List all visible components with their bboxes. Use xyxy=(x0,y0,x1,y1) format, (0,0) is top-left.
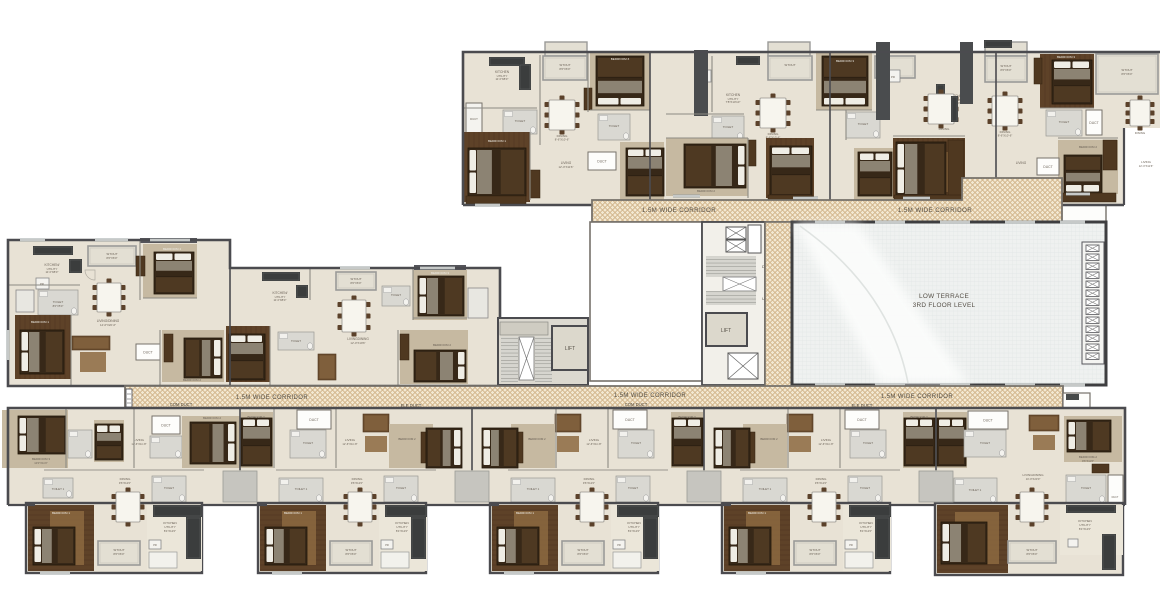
svg-text:PR: PR xyxy=(385,543,389,547)
svg-text:BEDROOM 3: BEDROOM 3 xyxy=(910,415,928,419)
svg-text:DUCT: DUCT xyxy=(1089,121,1098,125)
svg-text:DUCT: DUCT xyxy=(143,350,152,354)
svg-text:LIFT: LIFT xyxy=(721,328,731,334)
svg-text:8'6"X6'0": 8'6"X6'0" xyxy=(809,552,820,556)
svg-text:TOILET: TOILET xyxy=(631,441,641,445)
svg-text:DINING: DINING xyxy=(816,477,827,481)
svg-text:DINING: DINING xyxy=(939,127,950,131)
svg-text:BEDROOM 2: BEDROOM 2 xyxy=(697,189,715,193)
svg-text:DUCT: DUCT xyxy=(470,117,478,121)
svg-text:11'4"X8'0": 11'4"X8'0" xyxy=(496,77,509,81)
svg-text:10'-0"X23'0": 10'-0"X23'0" xyxy=(1026,477,1041,481)
svg-text:12'-0"X11'6": 12'-0"X11'6" xyxy=(1139,164,1153,168)
svg-text:LOW TERRACE: LOW TERRACE xyxy=(919,293,969,300)
svg-text:LIVING: LIVING xyxy=(821,438,832,442)
svg-text:BEDROOM 1: BEDROOM 1 xyxy=(31,320,49,324)
svg-text:LIFT: LIFT xyxy=(565,346,575,352)
svg-text:COM DUCT: COM DUCT xyxy=(625,402,648,407)
svg-text:TOILET 1: TOILET 1 xyxy=(527,487,540,491)
svg-text:TOILET: TOILET xyxy=(515,119,526,123)
svg-text:PR: PR xyxy=(849,543,853,547)
svg-text:UTILITY: UTILITY xyxy=(1079,523,1091,527)
svg-text:1.5M WIDE CORRIDOR: 1.5M WIDE CORRIDOR xyxy=(881,394,953,400)
svg-text:9'6"X11'6": 9'6"X11'6" xyxy=(1082,459,1094,463)
svg-text:DUCT: DUCT xyxy=(857,418,866,422)
svg-text:LIVINGDINING: LIVINGDINING xyxy=(1023,473,1045,477)
svg-text:BEDROOM 3: BEDROOM 3 xyxy=(836,59,854,63)
svg-text:TOILET: TOILET xyxy=(391,293,401,297)
svg-text:TOILET: TOILET xyxy=(303,441,313,445)
svg-text:DUCT: DUCT xyxy=(309,418,318,422)
svg-text:BEDROOM 2: BEDROOM 2 xyxy=(398,437,416,441)
svg-text:TOILET 1: TOILET 1 xyxy=(969,488,982,492)
svg-text:BEDROOM 4: BEDROOM 4 xyxy=(163,247,181,251)
svg-text:LIVING: LIVING xyxy=(134,438,145,442)
svg-text:BEDROOM-2: BEDROOM-2 xyxy=(1079,455,1098,459)
svg-text:BEDROOM 1: BEDROOM 1 xyxy=(52,511,70,515)
svg-text:PR: PR xyxy=(891,75,895,79)
svg-text:DINING: DINING xyxy=(584,477,595,481)
svg-text:12'-6"X11'-8": 12'-6"X11'-8" xyxy=(586,442,601,446)
svg-text:UTILITY: UTILITY xyxy=(860,525,872,529)
svg-text:LIVING: LIVING xyxy=(345,438,356,442)
svg-text:9'6"X12'0": 9'6"X12'0" xyxy=(351,481,363,485)
svg-text:TOILET: TOILET xyxy=(609,124,620,128)
svg-text:9'6"X12'0": 9'6"X12'0" xyxy=(119,481,131,485)
svg-text:DINING: DINING xyxy=(120,477,131,481)
svg-text:8'4"X12'0": 8'4"X12'0" xyxy=(1079,527,1091,531)
svg-text:TOILET 1: TOILET 1 xyxy=(759,487,772,491)
svg-text:TOILET: TOILET xyxy=(1081,486,1091,490)
svg-text:BEDROOM 3: BEDROOM 3 xyxy=(431,271,449,275)
svg-text:8'6"X6'0": 8'6"X6'0" xyxy=(1121,72,1132,76)
svg-text:8'-6"X10'-6": 8'-6"X10'-6" xyxy=(998,134,1013,138)
svg-text:PR: PR xyxy=(153,543,157,547)
svg-text:DUCT: DUCT xyxy=(1112,496,1119,499)
svg-text:8'0"X6'0": 8'0"X6'0" xyxy=(350,281,361,285)
svg-text:12'-0"X19'6": 12'-0"X19'6" xyxy=(350,341,365,345)
svg-text:DUCT: DUCT xyxy=(625,418,634,422)
svg-text:8'6"X6'0": 8'6"X6'0" xyxy=(559,67,570,71)
svg-text:BEDROOM 2: BEDROOM 2 xyxy=(528,437,546,441)
svg-text:1.5M WIDE CORRIDOR: 1.5M WIDE CORRIDOR xyxy=(898,207,972,214)
svg-text:8'4"X12'0": 8'4"X12'0" xyxy=(860,529,872,533)
svg-text:7'8"X10'10": 7'8"X10'10" xyxy=(726,100,741,104)
svg-text:8'4"X12'0": 8'4"X12'0" xyxy=(396,529,408,533)
svg-text:9'6"X12'0": 9'6"X12'0" xyxy=(583,481,595,485)
svg-text:BEDROOM 2: BEDROOM 2 xyxy=(433,343,451,347)
svg-text:DUCT: DUCT xyxy=(597,159,606,163)
svg-text:BEDROOM 1: BEDROOM 1 xyxy=(488,139,506,143)
svg-text:TOILET 1: TOILET 1 xyxy=(52,487,65,491)
svg-text:BEDROOM 3: BEDROOM 3 xyxy=(611,57,630,61)
svg-text:8'6"X6'0": 8'6"X6'0" xyxy=(577,552,588,556)
svg-text:12'-6"X11'-8": 12'-6"X11'-8" xyxy=(342,442,357,446)
svg-text:BEDROOM 2: BEDROOM 2 xyxy=(183,378,201,382)
svg-text:8'4"X12'0": 8'4"X12'0" xyxy=(164,529,176,533)
svg-text:TOILET: TOILET xyxy=(53,300,64,304)
svg-text:8'4"X12'0": 8'4"X12'0" xyxy=(628,529,640,533)
svg-text:8'6"X6'0": 8'6"X6'0" xyxy=(106,256,117,260)
svg-text:3RD FLOOR LEVEL: 3RD FLOOR LEVEL xyxy=(913,302,976,309)
svg-text:BEDROOM 2: BEDROOM 2 xyxy=(760,437,778,441)
svg-text:8'6"X6'0": 8'6"X6'0" xyxy=(113,552,124,556)
svg-text:TOILET: TOILET xyxy=(1059,120,1070,124)
svg-text:LIVING: LIVING xyxy=(589,438,600,442)
svg-text:UTILITY: UTILITY xyxy=(628,525,640,529)
svg-text:TOILET: TOILET xyxy=(863,441,873,445)
svg-text:LIVING: LIVING xyxy=(1016,161,1027,165)
svg-text:UTILITY: UTILITY xyxy=(396,525,408,529)
svg-text:1.5M WIDE CORRIDOR: 1.5M WIDE CORRIDOR xyxy=(642,207,716,214)
svg-text:8'-6"X10'-6": 8'-6"X10'-6" xyxy=(555,138,570,142)
svg-text:BEDROOM 2: BEDROOM 2 xyxy=(203,416,221,420)
svg-text:8'6"X6'0": 8'6"X6'0" xyxy=(1000,68,1011,72)
svg-text:COM DUCT: COM DUCT xyxy=(170,402,193,407)
svg-text:BEDROOM 3: BEDROOM 3 xyxy=(678,415,696,419)
svg-text:UTILITY: UTILITY xyxy=(164,525,176,529)
svg-text:BEDROOM 1: BEDROOM 1 xyxy=(284,511,302,515)
svg-text:TOILET 1: TOILET 1 xyxy=(295,487,308,491)
svg-text:TOILET: TOILET xyxy=(628,486,638,490)
svg-text:DUCT: DUCT xyxy=(161,423,170,427)
svg-text:DUCT: DUCT xyxy=(1043,165,1052,169)
svg-text:14'-6"X20'-6": 14'-6"X20'-6" xyxy=(100,323,116,327)
svg-text:DINING: DINING xyxy=(1135,131,1146,135)
svg-text:11'4"X8'0": 11'4"X8'0" xyxy=(274,298,287,302)
svg-text:TOILET: TOILET xyxy=(291,339,301,343)
svg-text:BEDROOM 3: BEDROOM 3 xyxy=(32,457,50,461)
svg-text:9'6"X12'0": 9'6"X12'0" xyxy=(815,481,827,485)
svg-text:TOILET: TOILET xyxy=(396,486,406,490)
svg-text:DUCT: DUCT xyxy=(983,418,992,422)
svg-text:SITOUT: SITOUT xyxy=(784,63,795,67)
svg-text:BEDROOM 3: BEDROOM 3 xyxy=(247,415,265,419)
svg-text:8'6"X6'0": 8'6"X6'0" xyxy=(1026,552,1037,556)
svg-text:DINING: DINING xyxy=(352,477,363,481)
svg-text:BEDROOM 1: BEDROOM 1 xyxy=(748,511,766,515)
svg-text:TOILET: TOILET xyxy=(723,125,734,129)
svg-text:8'0"X5'0": 8'0"X5'0" xyxy=(53,304,64,308)
svg-text:1.5M WIDE CORRIDOR: 1.5M WIDE CORRIDOR xyxy=(236,395,308,401)
svg-text:TOILET: TOILET xyxy=(164,486,174,490)
svg-text:PR: PR xyxy=(617,543,621,547)
svg-text:TOILET: TOILET xyxy=(980,441,990,445)
svg-text:TOILET: TOILET xyxy=(860,486,870,490)
svg-text:12'-0"X11'6": 12'-0"X11'6" xyxy=(559,165,574,169)
svg-text:1.5M WIDE CORRIDOR: 1.5M WIDE CORRIDOR xyxy=(614,393,686,399)
svg-text:BEDROOM 3: BEDROOM 3 xyxy=(1057,55,1075,59)
svg-text:LIVING: LIVING xyxy=(1141,160,1152,164)
svg-text:BEDROOM 2: BEDROOM 2 xyxy=(1079,145,1097,149)
svg-text:11'4"X8'0": 11'4"X8'0" xyxy=(46,270,59,274)
svg-text:TOILET: TOILET xyxy=(858,122,869,126)
svg-text:12'-6"X11'-8": 12'-6"X11'-8" xyxy=(818,442,833,446)
svg-text:10'0"X11'0": 10'0"X11'0" xyxy=(34,461,48,465)
svg-text:8'6"X6'0": 8'6"X6'0" xyxy=(345,552,356,556)
svg-text:BEDROOM 1: BEDROOM 1 xyxy=(516,511,534,515)
